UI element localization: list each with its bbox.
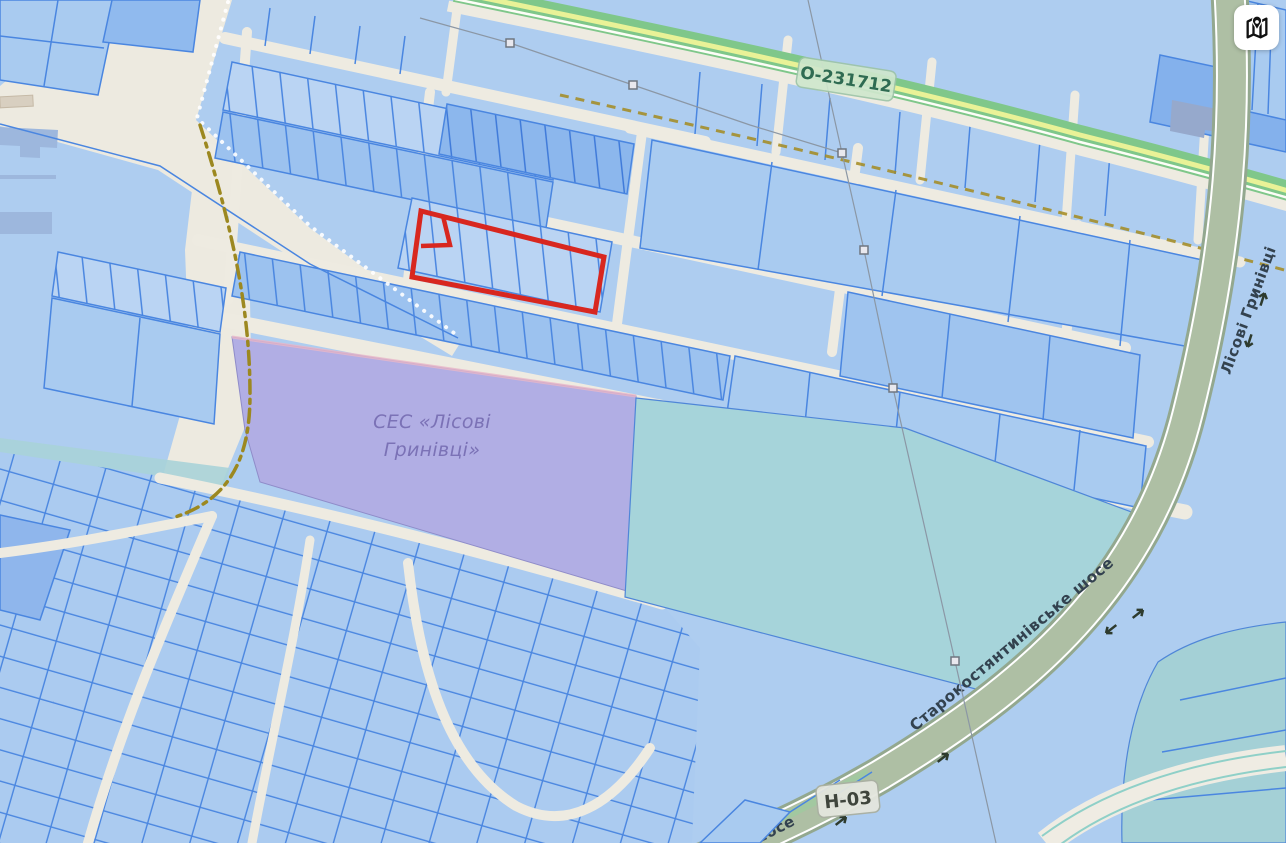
map-viewport[interactable]: СЕС «Лісові Гринівці» Лісові Гринівці Ст… [0,0,1286,843]
highway-badge: Н-03 [815,780,880,818]
cadastral-map-canvas[interactable]: СЕС «Лісові Гринівці» Лісові Гринівці Ст… [0,0,1286,843]
ses-area-label-line2: Гринівці» [384,439,481,461]
ses-area-label-line1: СЕС «Лісові [373,411,491,433]
show-on-map-button[interactable] [1234,5,1279,50]
map-with-pin-icon [1243,14,1271,42]
tan-building [0,95,33,108]
